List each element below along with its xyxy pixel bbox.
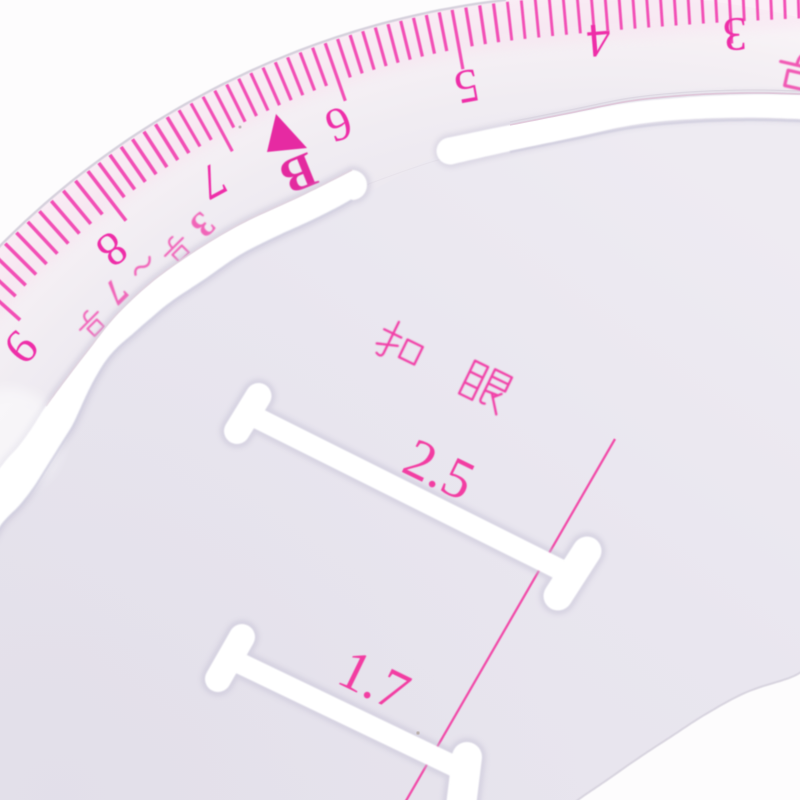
svg-text:3: 3 (722, 7, 749, 61)
svg-text:4: 4 (585, 13, 613, 68)
